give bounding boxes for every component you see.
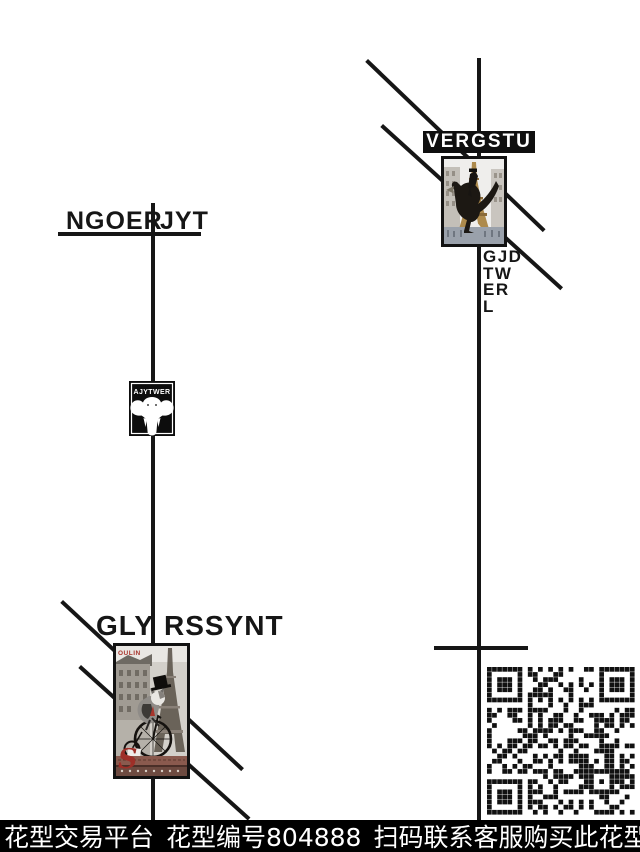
collage-image-raptor-rider xyxy=(441,156,507,247)
collage-corner-initial: S xyxy=(118,744,138,775)
brand-banner: VERGSTU xyxy=(423,131,535,153)
vertical-label: GJD TW ER L xyxy=(483,249,522,315)
subtitle-text-right-part: RSSYNT xyxy=(164,610,284,642)
brand-badge: AJYTWER xyxy=(129,381,175,436)
bottom-right-horizontal-line xyxy=(434,646,528,650)
title-text-right-part: JYT xyxy=(160,207,209,236)
subtitle-text-left-part: GLY xyxy=(96,610,154,642)
title-text-left-part: NGOER xyxy=(66,207,163,236)
footer-pattern-id: 花型编号804888 xyxy=(166,820,361,852)
footer-platform-name: 花型交易平台 xyxy=(4,820,154,852)
collage-top-text: OULIN xyxy=(118,650,141,657)
footer-bar: 花型交易平台 花型编号804888 扫码联系客服购买此花型 xyxy=(0,820,640,852)
vertical-label-line: L xyxy=(483,299,522,316)
collage-image-bicycle-cat: OULIN S xyxy=(113,643,190,779)
footer-cta-text: 扫码联系客服购买此花型 xyxy=(373,820,640,852)
badge-label: AJYTWER xyxy=(133,389,170,396)
qr-code xyxy=(487,667,635,815)
pattern-preview-canvas: NGOER JYT GLY RSSYNT AJYTWER VERGSTU GJD… xyxy=(0,0,640,852)
